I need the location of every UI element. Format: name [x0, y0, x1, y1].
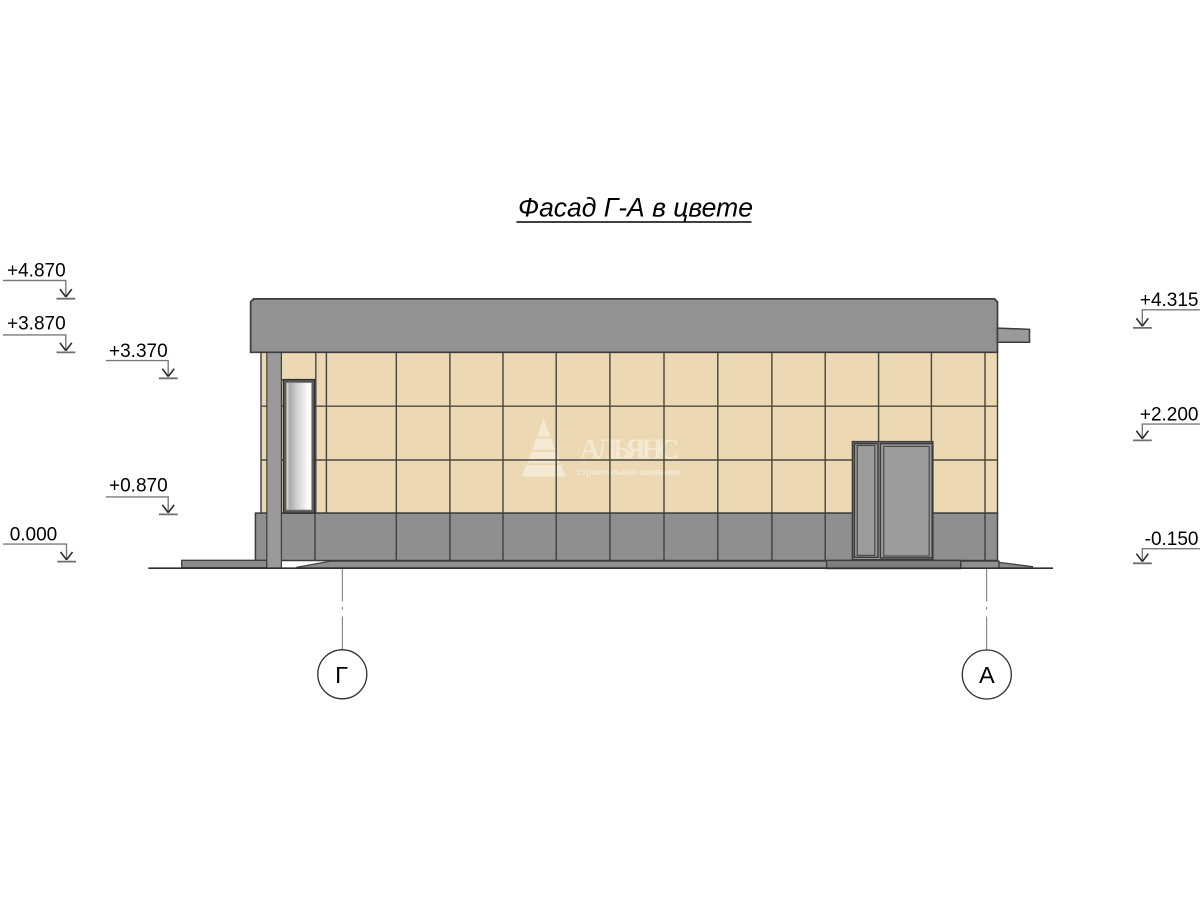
svg-text:+3.870: +3.870 [7, 314, 66, 335]
svg-text:строительная компания: строительная компания [577, 467, 681, 478]
svg-text:0.000: 0.000 [10, 524, 58, 545]
svg-text:-0.150: -0.150 [1145, 529, 1199, 550]
svg-text:+4.315: +4.315 [1140, 290, 1199, 311]
svg-text:+2.200: +2.200 [1140, 404, 1199, 425]
svg-text:Г: Г [335, 662, 348, 688]
svg-text:+3.370: +3.370 [109, 341, 168, 362]
svg-text:+4.870: +4.870 [7, 261, 66, 282]
svg-text:Фасад Г-А в цвете: Фасад Г-А в цвете [518, 193, 753, 223]
svg-text:А: А [979, 662, 995, 688]
svg-text:+0.870: +0.870 [109, 475, 168, 496]
